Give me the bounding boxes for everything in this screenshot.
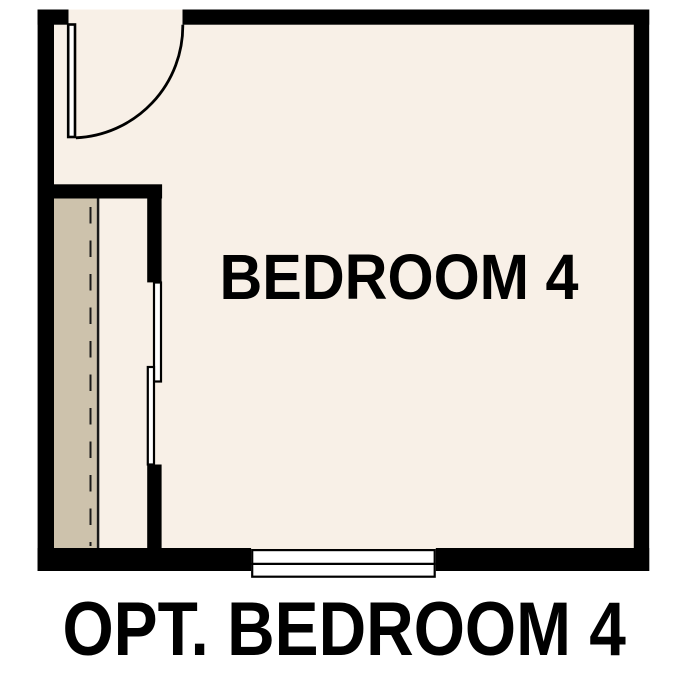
svg-text:OPT. BEDROOM 4: OPT. BEDROOM 4 — [62, 587, 626, 672]
svg-text:BEDROOM 4: BEDROOM 4 — [220, 241, 579, 313]
